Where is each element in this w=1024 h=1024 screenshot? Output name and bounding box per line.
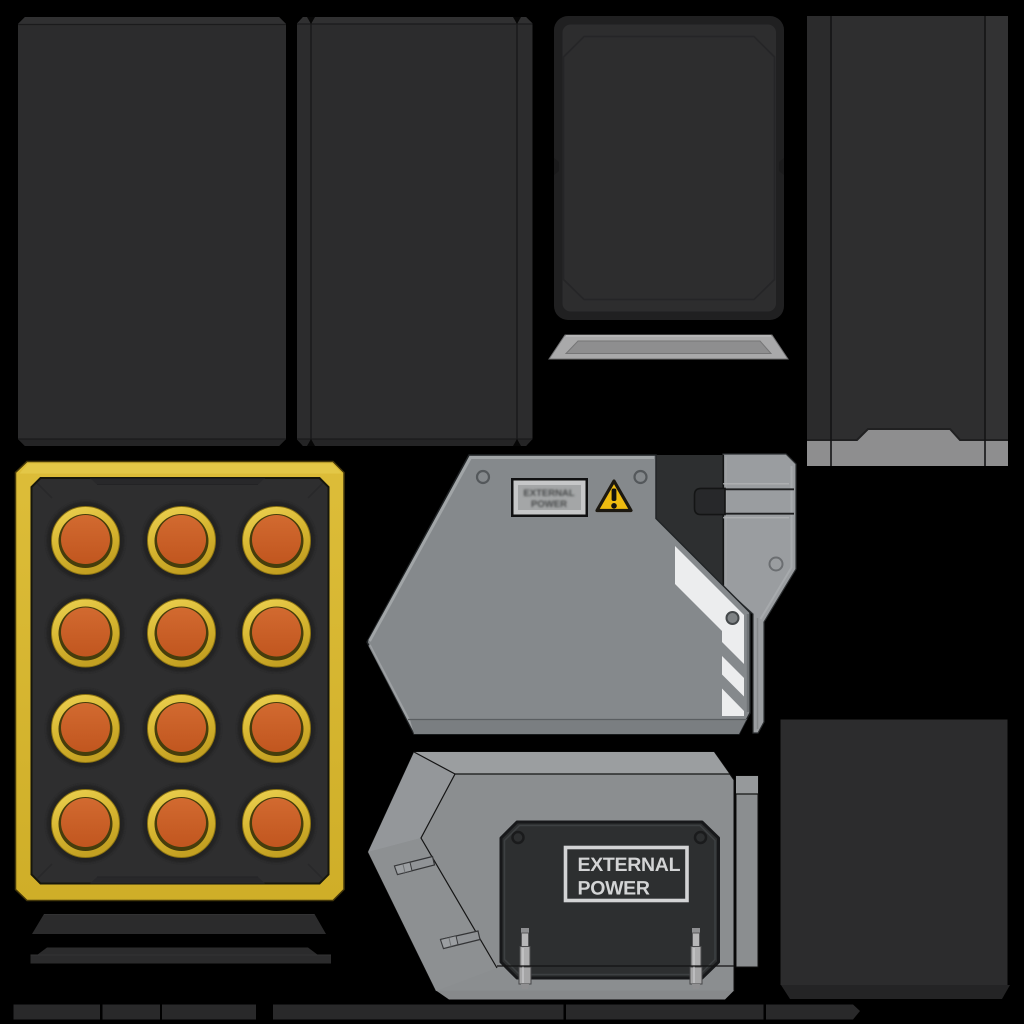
svg-text:EXTERNAL: EXTERNAL: [523, 488, 574, 499]
svg-text:POWER: POWER: [531, 499, 567, 510]
svg-text:POWER: POWER: [578, 878, 650, 900]
svg-text:EXTERNAL: EXTERNAL: [578, 854, 681, 876]
